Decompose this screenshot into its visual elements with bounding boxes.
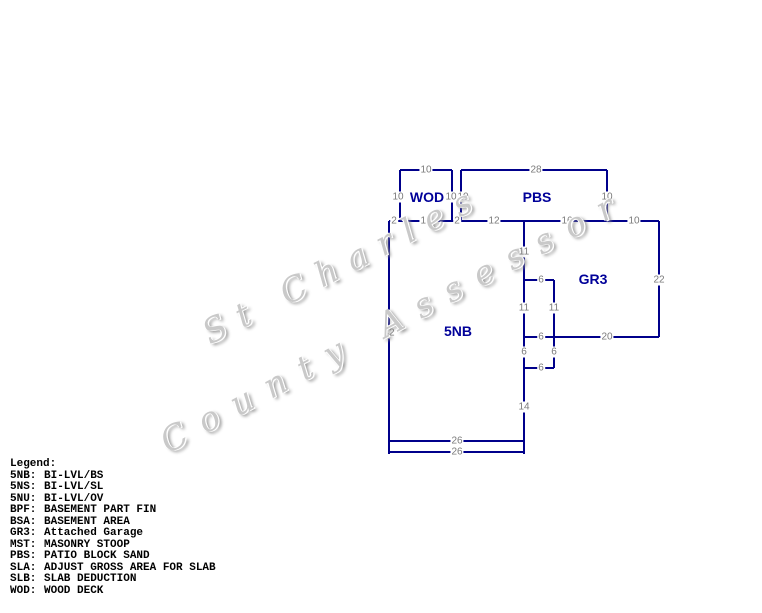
legend-desc: MASONRY STOOP xyxy=(44,539,130,551)
legend-desc: PATIO BLOCK SAND xyxy=(44,550,150,562)
legend-title: Legend: xyxy=(10,459,216,471)
legend-abbr: WOD: xyxy=(10,586,44,598)
dimension-label: 11 xyxy=(548,303,560,314)
dimension-label: 6 xyxy=(537,332,545,343)
dimension-label: 6 xyxy=(537,275,545,286)
area-code-label-wod: WOD xyxy=(408,189,446,205)
legend-desc: BI-LVL/OV xyxy=(44,493,103,505)
dimension-label: 20 xyxy=(600,332,613,343)
legend-row: 5NB:BI-LVL/BS xyxy=(10,471,216,483)
dimension-label: 6 xyxy=(537,363,545,374)
area-code-label-5nb: 5NB xyxy=(442,323,474,339)
dimension-label: 26 xyxy=(450,447,463,458)
legend-desc: BASEMENT PART FIN xyxy=(44,504,156,516)
dimension-label: 26 xyxy=(450,436,463,447)
dimension-label: 6 xyxy=(520,347,528,358)
legend-desc: BI-LVL/BS xyxy=(44,470,103,482)
legend-abbr: 5NS: xyxy=(10,482,44,494)
dimension-label: 10 xyxy=(391,192,404,203)
assessor-sketch-page: 1028101010102102121610116221111426206661… xyxy=(0,0,762,613)
legend-entries: 5NB:BI-LVL/BS5NS:BI-LVL/SL5NU:BI-LVL/OVB… xyxy=(10,471,216,598)
legend-abbr: BPF: xyxy=(10,505,44,517)
dimension-label: 10 xyxy=(419,165,432,176)
dimension-label: 11 xyxy=(518,303,530,314)
legend: Legend: 5NB:BI-LVL/BS5NS:BI-LVL/SL5NU:BI… xyxy=(10,459,216,598)
legend-desc: BI-LVL/SL xyxy=(44,481,103,493)
legend-row: 5NS:BI-LVL/SL xyxy=(10,482,216,494)
area-code-label-pbs: PBS xyxy=(521,189,554,205)
dimension-label: 6 xyxy=(550,347,558,358)
dimension-label: 22 xyxy=(652,275,665,286)
legend-desc: BASEMENT AREA xyxy=(44,516,130,528)
legend-row: SLB:SLAB DEDUCTION xyxy=(10,574,216,586)
legend-desc: SLAB DEDUCTION xyxy=(44,573,136,585)
area-code-label-gr3: GR3 xyxy=(577,271,610,287)
legend-desc: WOOD DECK xyxy=(44,585,103,597)
dimension-label: 28 xyxy=(529,165,542,176)
legend-desc: ADJUST GROSS AREA FOR SLAB xyxy=(44,562,216,574)
dimension-label: 14 xyxy=(517,402,530,413)
dimension-label: 12 xyxy=(487,216,500,227)
legend-row: WOD:WOOD DECK xyxy=(10,586,216,598)
legend-desc: Attached Garage xyxy=(44,527,143,539)
